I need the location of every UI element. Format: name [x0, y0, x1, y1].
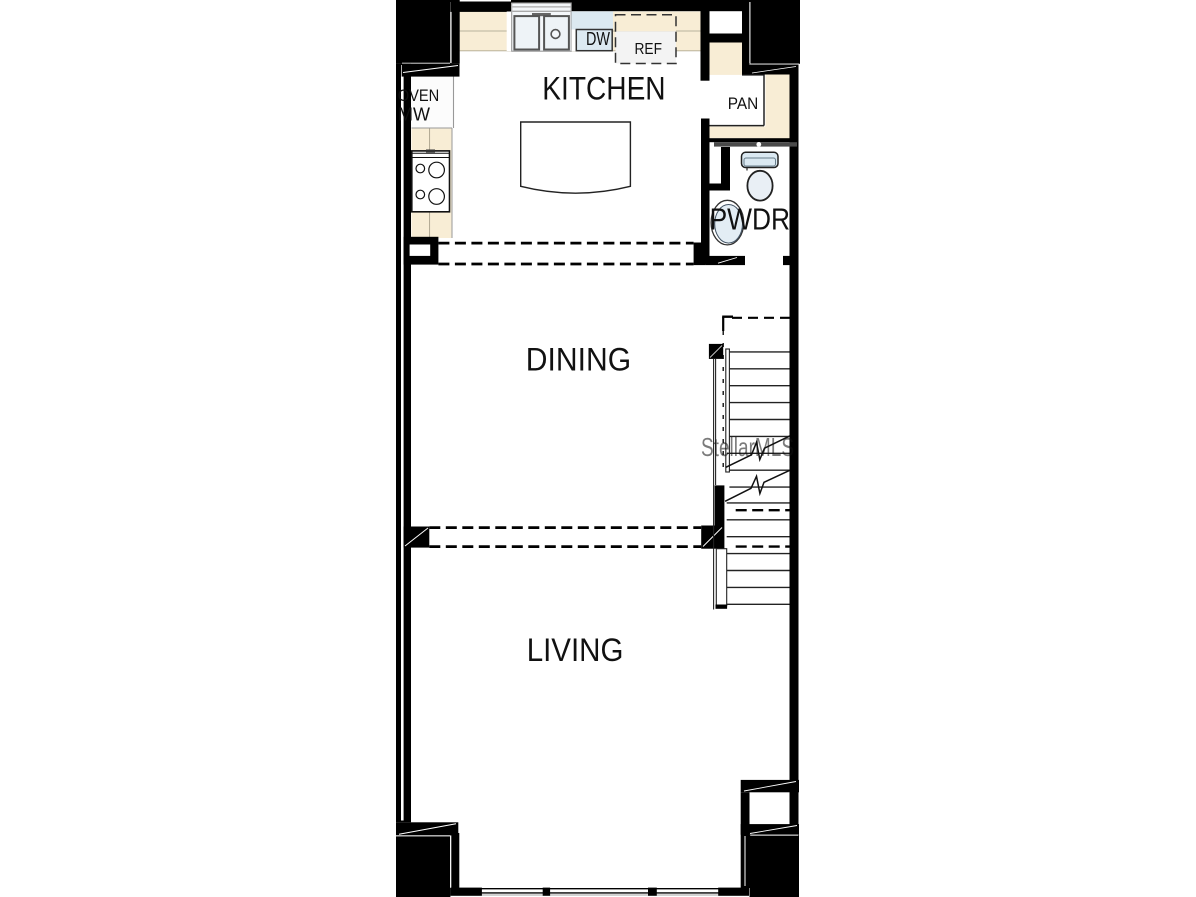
svg-text:KITCHEN: KITCHEN: [542, 71, 665, 107]
svg-text:REF: REF: [635, 41, 663, 58]
svg-text:StellarMLS: StellarMLS: [701, 432, 794, 462]
svg-text:OVEN: OVEN: [398, 86, 440, 105]
svg-text:LIVING: LIVING: [527, 632, 624, 668]
svg-text:DINING: DINING: [526, 341, 631, 377]
svg-text:PWDR: PWDR: [710, 202, 791, 237]
svg-text:DW: DW: [586, 29, 610, 49]
svg-text:PAN: PAN: [728, 94, 759, 113]
svg-text:MW: MW: [398, 104, 431, 125]
